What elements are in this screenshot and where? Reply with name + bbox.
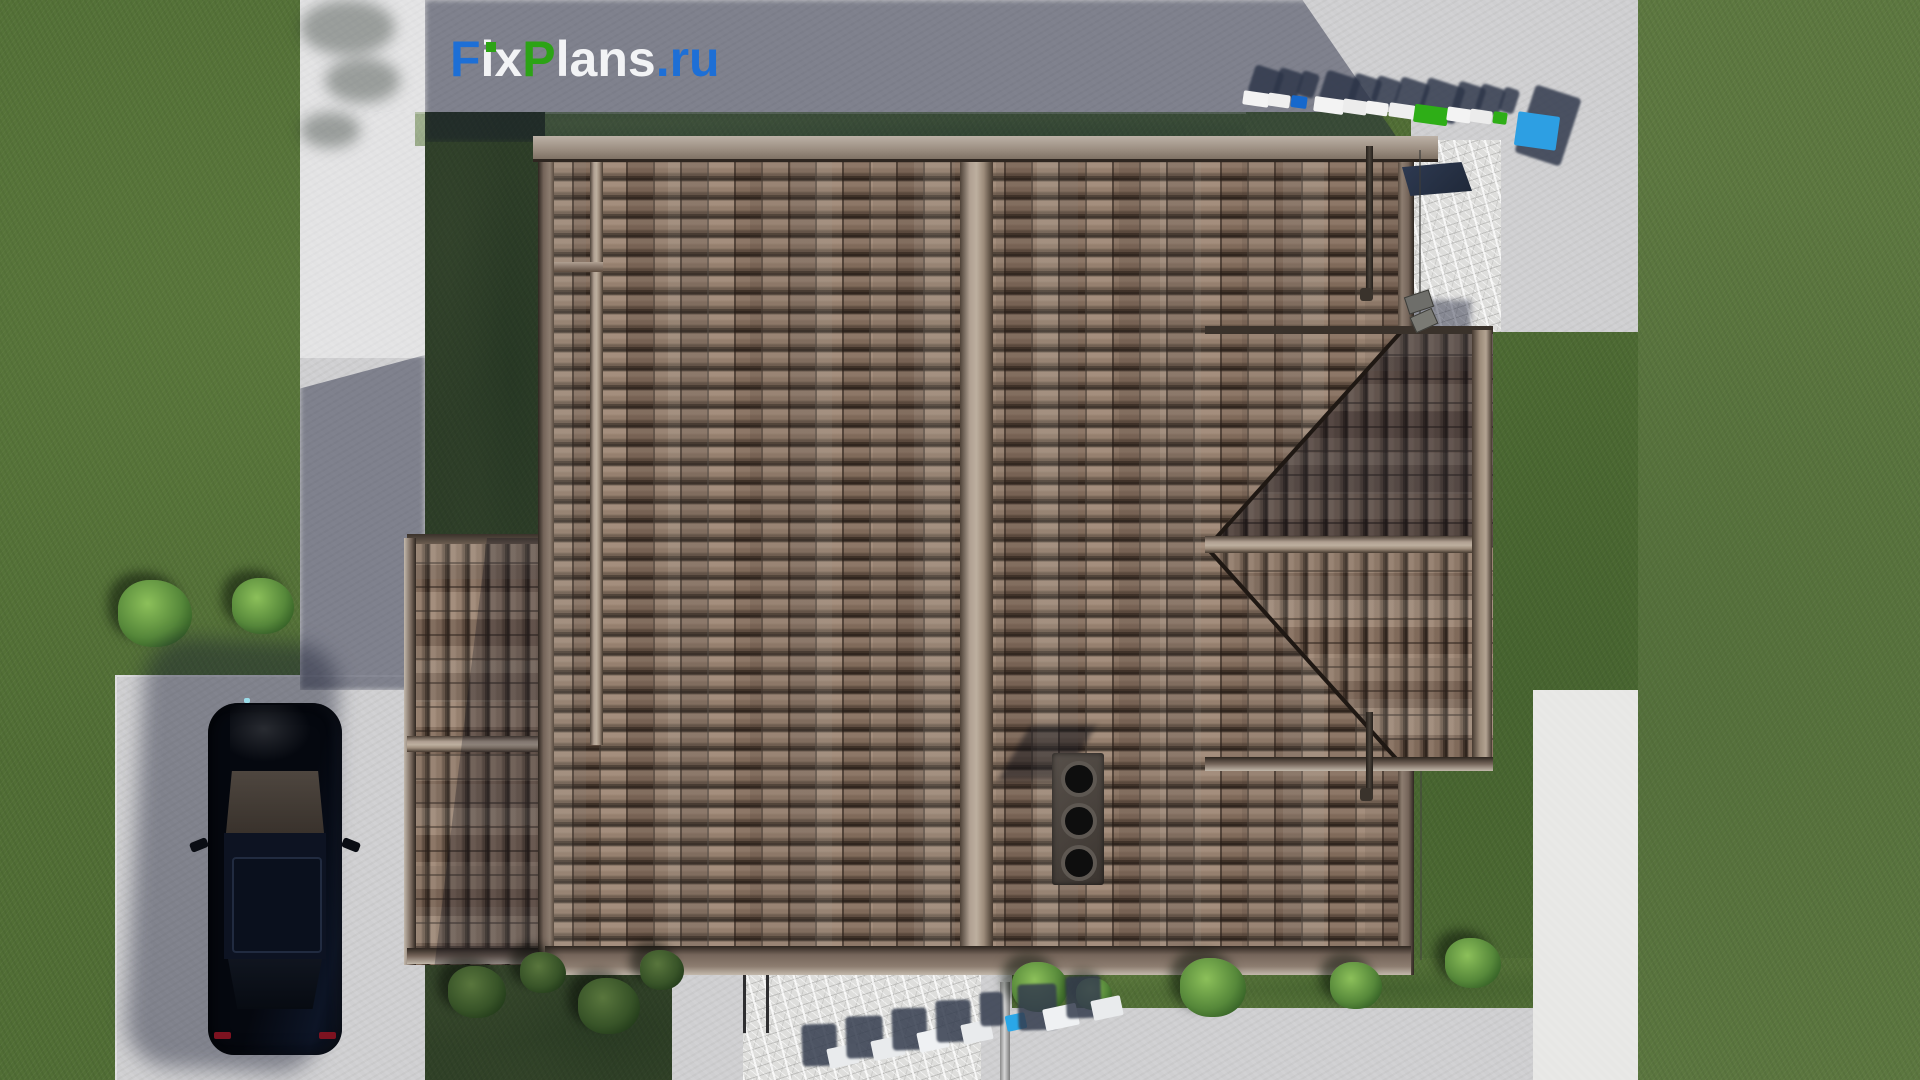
- roof-wing-bottom-eave: [1205, 757, 1493, 771]
- watermark-letter-top: [1514, 111, 1560, 151]
- roof-top-eave: [533, 136, 1438, 162]
- car-hood-highlight: [230, 705, 315, 765]
- roof-wing-right-eave: [1472, 330, 1492, 765]
- tree-shadow: [325, 58, 400, 103]
- roof-wing-top-edge: [1205, 326, 1493, 334]
- chimney-vent-stack: [1052, 753, 1104, 885]
- bush: [1330, 962, 1382, 1009]
- car-taillight-right: [319, 1032, 336, 1039]
- gutter-downpipe-upper: [1366, 146, 1373, 294]
- bush: [520, 952, 566, 993]
- roof-main-left-ridge: [590, 140, 603, 745]
- logo-seg-ru: ru: [670, 31, 720, 87]
- roof-wing-ridge: [1205, 536, 1481, 553]
- bush: [578, 978, 640, 1034]
- downpipe-knob: [1360, 788, 1373, 801]
- downpipe-knob: [1360, 288, 1373, 301]
- vent-circle: [1061, 845, 1097, 881]
- car: [200, 695, 350, 1065]
- watermark-letter-top: [1492, 111, 1508, 125]
- watermark-letter-top: [1290, 95, 1308, 109]
- gutter-downpipe-lower: [1366, 712, 1373, 794]
- logo-seg-p: P: [522, 31, 555, 87]
- logo-seg-lans: lans: [556, 31, 656, 87]
- bush: [640, 950, 684, 990]
- house-shadow-left-grass: [425, 112, 545, 540]
- tree-shadow: [300, 112, 360, 148]
- site-logo: FixPlans.ru: [450, 34, 720, 84]
- watermark-letter-shadow: [979, 992, 1003, 1027]
- bush: [448, 966, 506, 1018]
- bush: [1445, 938, 1501, 988]
- garden-border-line: [1420, 758, 1422, 960]
- bush: [232, 578, 294, 634]
- roof-right-eave-lower: [1398, 755, 1414, 975]
- lawn-right: [1638, 0, 1920, 1080]
- roof-main-central-ridge: [960, 140, 993, 975]
- logo-seg-dot: .: [656, 31, 670, 87]
- garden-path-right: [1533, 690, 1638, 1080]
- logo-seg-x: x: [494, 31, 522, 87]
- bush: [118, 580, 192, 647]
- logo-i-dot: [486, 42, 496, 52]
- sunlit-sidewalk: [300, 0, 425, 358]
- logo-seg-f: F: [450, 31, 481, 87]
- car-sunroof: [232, 857, 322, 953]
- vent-circle: [1061, 761, 1097, 797]
- bush: [1180, 958, 1246, 1017]
- vent-circle: [1061, 803, 1097, 839]
- logo-seg-i: i: [481, 31, 495, 87]
- car-front-sensor: [244, 698, 250, 703]
- tree-shadow: [300, 0, 395, 55]
- roof-left-eave: [538, 140, 554, 975]
- render-canvas: FixPlans.ru: [0, 0, 1920, 1080]
- car-rear-window: [228, 959, 322, 1009]
- car-taillight-left: [214, 1032, 231, 1039]
- car-windshield: [226, 771, 324, 833]
- entry-canopy: [1402, 162, 1472, 196]
